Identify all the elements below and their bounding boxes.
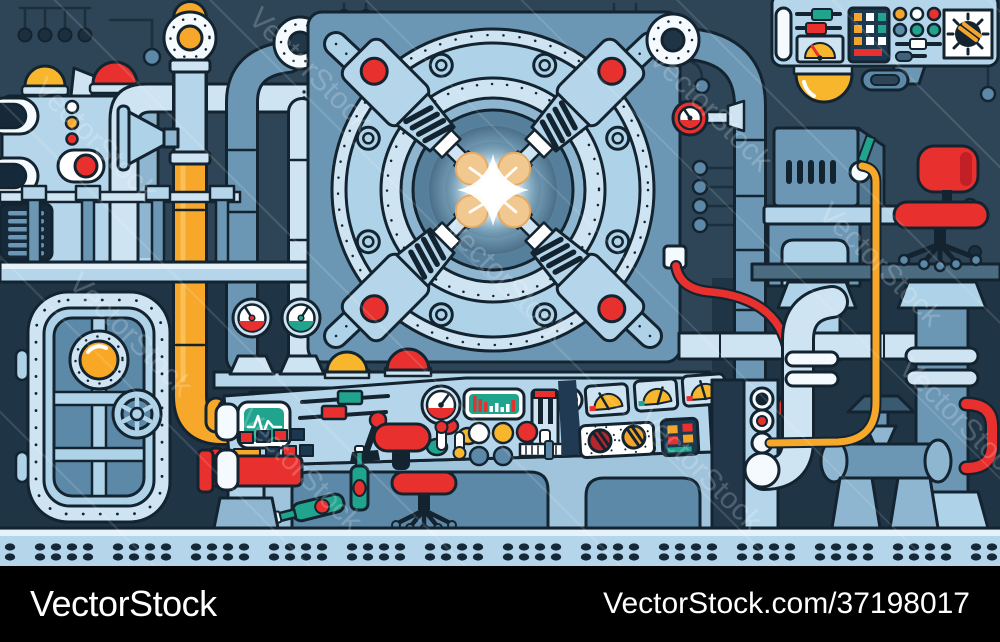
slider-knob-red[interactable]: [322, 406, 346, 419]
indicator-amber: [66, 117, 78, 129]
pipe-tee-sleeve: [170, 152, 210, 164]
port-opening: [0, 104, 26, 128]
big-pipe-port: [745, 453, 779, 487]
hinge: [16, 452, 28, 482]
panel-slider-white[interactable]: [910, 39, 926, 49]
lab-illustration: [0, 0, 1000, 566]
panel-slider-red[interactable]: [806, 23, 826, 34]
port-black: [756, 393, 769, 406]
indicator-red: [67, 134, 78, 145]
platform-highlight: [2, 264, 312, 269]
panel-slider-gray[interactable]: [896, 52, 912, 61]
hinge: [16, 350, 28, 380]
panel-handle[interactable]: [776, 8, 791, 60]
image-url-text: VectorStock.com/37198017: [603, 587, 970, 621]
big-red-grip[interactable]: [374, 424, 430, 451]
pipe-clamp: [216, 450, 238, 490]
mini-keypad[interactable]: [661, 418, 699, 456]
vectorstock-logo-text: VectorStock: [30, 583, 217, 625]
reactor-portal: [308, 12, 680, 362]
pipe-clamp: [216, 404, 238, 440]
panel-slider-green[interactable]: [812, 9, 832, 20]
pipe-gauge-red: [233, 299, 271, 337]
hazard-sign: [944, 10, 992, 58]
porthole: [70, 331, 128, 389]
console-arch-right: [586, 478, 700, 530]
indicator-white: [66, 101, 78, 113]
riveted-floor: [0, 528, 1000, 566]
port-red-cable: [757, 416, 767, 426]
panel-keypad[interactable]: [849, 8, 889, 62]
knob-panel[interactable]: [579, 421, 655, 458]
pipe-flange: [662, 29, 684, 51]
door-handwheel[interactable]: [113, 390, 161, 438]
vectorstock-preview: VectorStock VectorStock VectorStock Vect…: [0, 0, 1000, 642]
watermark-footer-bar: VectorStock VectorStock.com/37198017: [0, 566, 1000, 642]
pipe-flange: [178, 26, 202, 50]
hatch-door[interactable]: [16, 292, 170, 522]
big-red-button[interactable]: [75, 155, 97, 177]
slider-knob-green[interactable]: [338, 391, 362, 404]
pipe-gauge-teal: [282, 299, 320, 337]
round-gauge: [422, 386, 460, 424]
port-opening: [0, 164, 26, 188]
panel-gauge: [797, 36, 843, 62]
bottle-label: [354, 480, 366, 496]
